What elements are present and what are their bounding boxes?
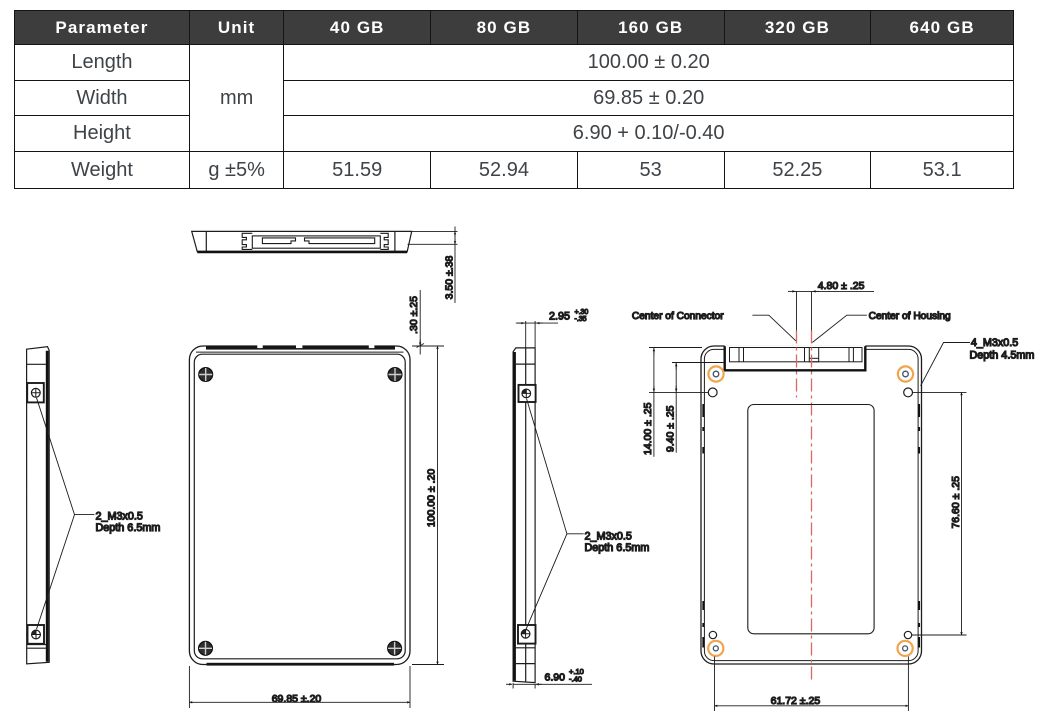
svg-text:-.40: -.40 (569, 674, 582, 683)
svg-text:-.35: -.35 (575, 316, 587, 323)
svg-text:14.00 ± .25: 14.00 ± .25 (642, 402, 654, 455)
svg-text:76.60 ± .25: 76.60 ± .25 (950, 476, 962, 529)
svg-text:2_M3x0.5: 2_M3x0.5 (585, 530, 632, 542)
svg-text:61.72 ±.25: 61.72 ±.25 (771, 695, 821, 707)
svg-text:2_M3x0.5: 2_M3x0.5 (96, 510, 143, 522)
svg-text:Center of Housing: Center of Housing (869, 311, 951, 322)
svg-text:Depth 6.5mm: Depth 6.5mm (96, 522, 161, 534)
svg-text:Depth 6.5mm: Depth 6.5mm (585, 542, 650, 554)
svg-text:3.50 ±.38: 3.50 ±.38 (444, 255, 456, 299)
svg-text:4.80 ± .25: 4.80 ± .25 (818, 280, 865, 292)
svg-text:4_M3x0.5: 4_M3x0.5 (971, 337, 1018, 349)
svg-text:Center of Connector: Center of Connector (632, 311, 724, 322)
svg-text:100.00 ± .20: 100.00 ± .20 (426, 469, 438, 527)
svg-text:6.90: 6.90 (545, 671, 566, 683)
svg-text:9.40 ± .25: 9.40 ± .25 (665, 405, 677, 452)
svg-text:69.85 ±.20: 69.85 ±.20 (272, 693, 322, 705)
svg-text:Depth 4.5mm: Depth 4.5mm (970, 350, 1035, 362)
svg-text:.30 ±.25: .30 ±.25 (408, 296, 420, 334)
svg-text:2.95: 2.95 (549, 311, 570, 323)
svg-text:+.30: +.30 (575, 309, 589, 316)
